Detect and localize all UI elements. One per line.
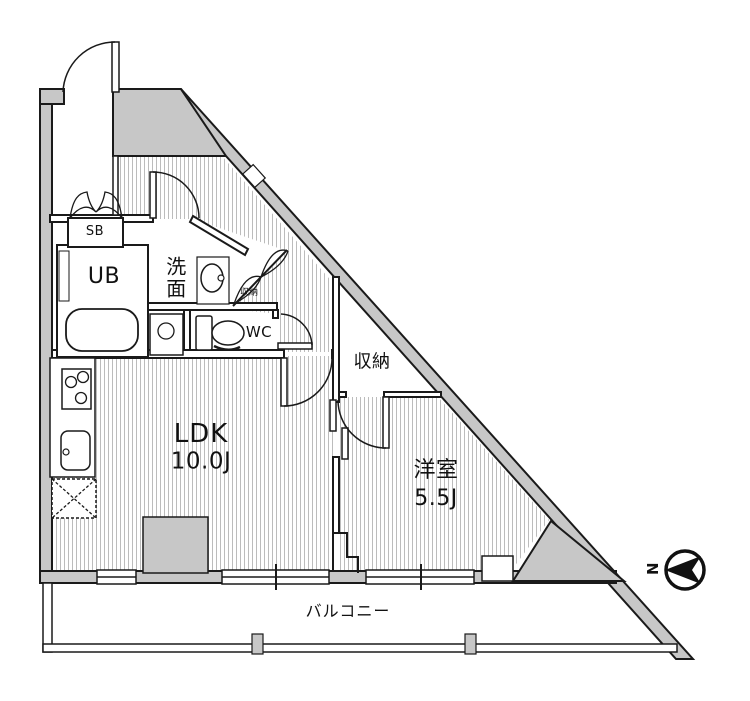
bath-counter bbox=[59, 251, 69, 301]
balcony-rail-left bbox=[43, 583, 52, 652]
hall-closet-label: 収納 bbox=[240, 289, 258, 299]
balcony-post-2 bbox=[465, 634, 476, 654]
sliding-door-panel-b bbox=[342, 428, 348, 459]
washroom-label: 洗面 bbox=[163, 256, 185, 300]
ldk-door-leaf bbox=[281, 358, 287, 406]
laundry-drain bbox=[158, 323, 174, 339]
bedroom-closet-wall-left bbox=[339, 392, 346, 397]
left-wall bbox=[40, 89, 52, 583]
burner-3 bbox=[76, 393, 87, 404]
toilet-label: WC bbox=[246, 324, 272, 340]
bedroom-size-label: 5.5J bbox=[414, 487, 457, 511]
burner-1 bbox=[66, 377, 77, 388]
top-wall-stub bbox=[40, 89, 64, 104]
basin-faucet bbox=[218, 275, 224, 281]
bedroom-closet-wall-right bbox=[384, 392, 441, 397]
north-label: N bbox=[644, 562, 660, 575]
toilet-bowl bbox=[212, 321, 244, 345]
toilet-tank bbox=[196, 316, 212, 350]
wc-right-stub bbox=[273, 310, 278, 318]
bedroom-closet-label: 収納 bbox=[354, 352, 391, 371]
fridge-space bbox=[52, 479, 96, 518]
bedroom-corner-step bbox=[482, 556, 513, 581]
balcony-post-1 bbox=[252, 634, 263, 654]
ldk-size-label: 10.0J bbox=[171, 450, 232, 475]
entrance-door-leaf bbox=[112, 42, 119, 92]
sliding-door-panel-a bbox=[330, 400, 336, 431]
ldk-pillar bbox=[143, 517, 208, 573]
entrance-door-arc bbox=[63, 42, 115, 92]
sink-faucet bbox=[63, 449, 69, 455]
washroom-door-leaf bbox=[150, 172, 156, 218]
bathtub bbox=[66, 309, 138, 351]
wc-door-leaf bbox=[278, 343, 312, 349]
vestibule-wall bbox=[113, 156, 118, 215]
ldk-bedroom-wall-upper bbox=[333, 277, 339, 402]
ldk-bedroom-wall-lower bbox=[333, 457, 339, 533]
balcony-rail-bottom bbox=[43, 644, 677, 652]
shoe-box-label: SB bbox=[86, 225, 104, 239]
unit-bath-label: UB bbox=[88, 265, 120, 289]
bedroom-name-label: 洋室 bbox=[413, 459, 458, 483]
floor-plan: SB UB 洗面 WC 収納 収納 LDK 10.0J 洋室 5.5J バルコニ… bbox=[0, 0, 750, 701]
ldk-name-label: LDK bbox=[174, 420, 229, 448]
north-compass bbox=[665, 551, 704, 589]
bedroom-floor bbox=[339, 397, 549, 571]
burner-2 bbox=[78, 372, 89, 383]
balcony-label: バルコニー bbox=[306, 602, 391, 619]
closet-door-leaf bbox=[383, 397, 389, 448]
